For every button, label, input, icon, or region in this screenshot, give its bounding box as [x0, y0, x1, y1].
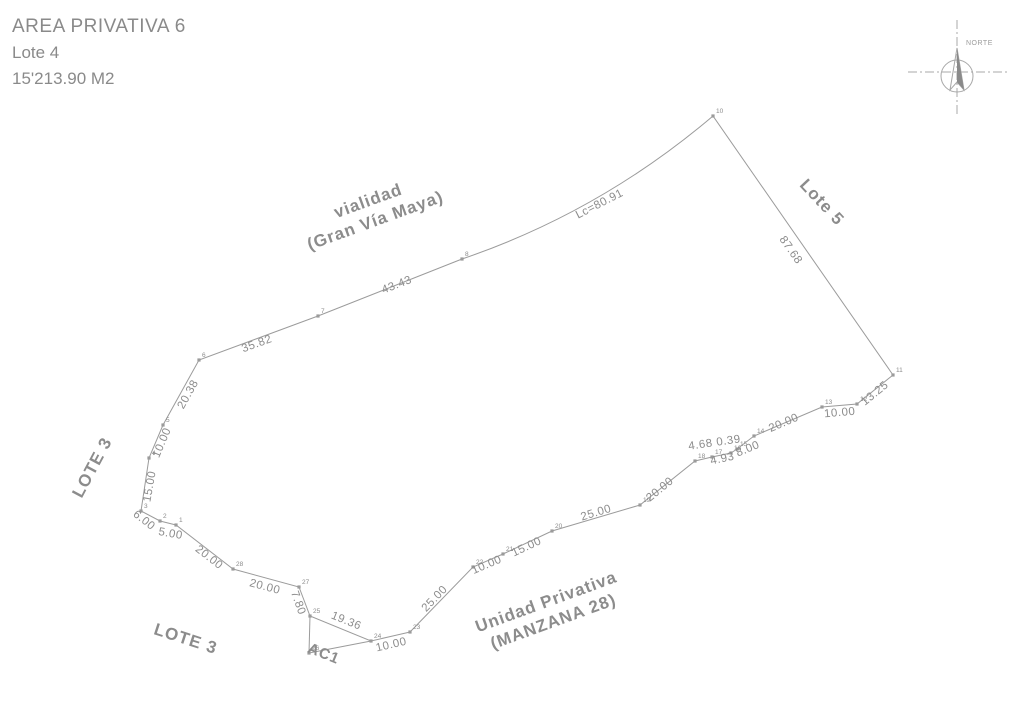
north-arrow: NORTE	[900, 10, 1024, 130]
vertex-number: 2	[163, 513, 167, 520]
vertex-number: 10	[716, 108, 724, 115]
dimension-label: 19.36	[329, 610, 362, 633]
vertex-number: 27	[302, 579, 310, 586]
vertex-number: 5	[166, 417, 170, 424]
vertex-number: 1	[179, 517, 183, 524]
vertex-marker	[158, 519, 161, 522]
vertex-marker	[408, 630, 411, 633]
lote3-left-label: LOTE 3	[68, 434, 116, 501]
dimension-label: 10.00	[470, 554, 503, 577]
vertex-marker	[297, 585, 300, 588]
vertex-marker	[752, 434, 755, 437]
dimension-label: 35.82	[240, 333, 273, 355]
vertex-number: 6	[202, 352, 206, 359]
vertex-number: 14	[757, 428, 765, 435]
dimension-label: 10.00	[151, 426, 174, 459]
dimension-label: 20.00	[767, 412, 800, 435]
dimension-label: 4.68	[688, 437, 714, 452]
dimension-label: 6.00	[131, 508, 158, 532]
dimension-label: 20.00	[644, 475, 676, 504]
dimension-label: 15.00	[141, 470, 158, 503]
dimension-label: 20.00	[193, 543, 225, 572]
dimension-label: 15.00	[510, 535, 543, 559]
vertex-marker	[197, 358, 200, 361]
survey-drawing: 1234567810111213141516171819202122232425…	[0, 0, 1024, 714]
dimension-label: 25.00	[579, 503, 612, 524]
vertex-marker	[711, 114, 714, 117]
vertex-number: 18	[698, 453, 706, 460]
dimension-label: 10.00	[824, 406, 856, 421]
vertex-number: 11	[896, 367, 903, 374]
norte-label: NORTE	[966, 40, 993, 47]
vertex-number: 20	[555, 523, 563, 530]
vertex-number: 23	[413, 624, 421, 631]
dimension-label: 4.93	[709, 451, 735, 468]
vertex-marker	[147, 456, 150, 459]
vertex-marker	[316, 314, 319, 317]
lote5-label: Lote 5	[796, 175, 848, 229]
vertex-marker	[231, 567, 234, 570]
vertex-marker	[693, 459, 696, 462]
vertex-number: 28	[236, 561, 244, 568]
dimension-label: 7.80	[288, 589, 308, 616]
vertex-marker	[460, 257, 463, 260]
vertex-marker	[369, 639, 372, 642]
vertex-number: 25	[313, 608, 321, 615]
vertex-number: 8	[465, 251, 469, 258]
vertex-marker	[308, 614, 311, 617]
dimension-label: 43.43	[380, 274, 414, 296]
dimension-label: 25.00	[420, 583, 450, 614]
lote3-bottom-label: LOTE 3	[152, 620, 220, 658]
dimension-label: Lc=80.91	[574, 187, 625, 221]
vertex-number: 7	[321, 308, 325, 315]
vertex-number: 3	[144, 503, 148, 510]
ac1-label: AC1	[305, 640, 342, 668]
vertex-marker	[638, 503, 641, 506]
vertex-marker	[550, 529, 553, 532]
vertex-number: 24	[374, 633, 382, 640]
vertex-marker	[174, 523, 177, 526]
vertex-marker	[891, 373, 894, 376]
dimension-label: 20.00	[248, 577, 281, 597]
vertex-marker	[855, 402, 858, 405]
dimension-label: 87.68	[777, 234, 805, 267]
vertex-number: 13	[825, 399, 833, 406]
vertex-marker	[501, 552, 504, 555]
dimension-label: 13.25	[859, 379, 891, 408]
boundary-path	[141, 116, 893, 641]
